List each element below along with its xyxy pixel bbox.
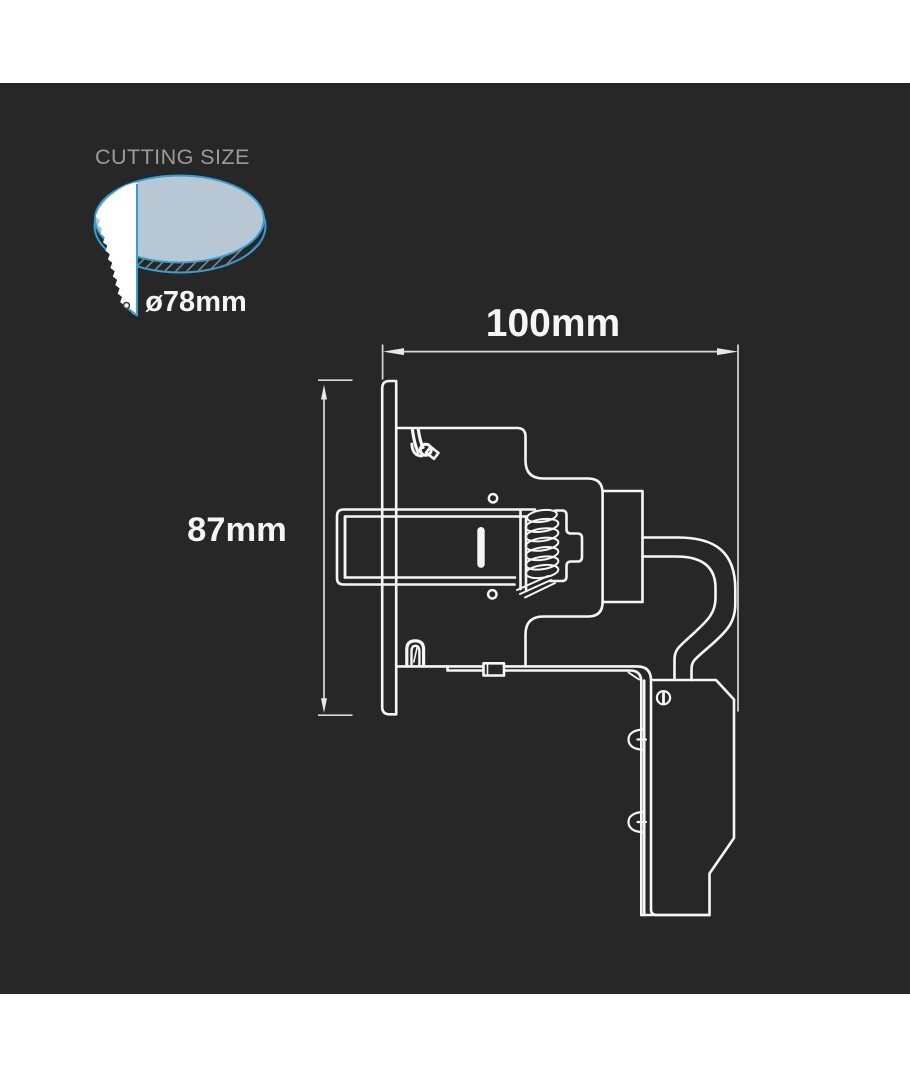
- svg-text:CUTTING SIZE: CUTTING SIZE: [95, 144, 250, 169]
- svg-text:100mm: 100mm: [486, 302, 620, 345]
- svg-text:ø78mm: ø78mm: [145, 286, 247, 318]
- svg-text:87mm: 87mm: [187, 511, 287, 549]
